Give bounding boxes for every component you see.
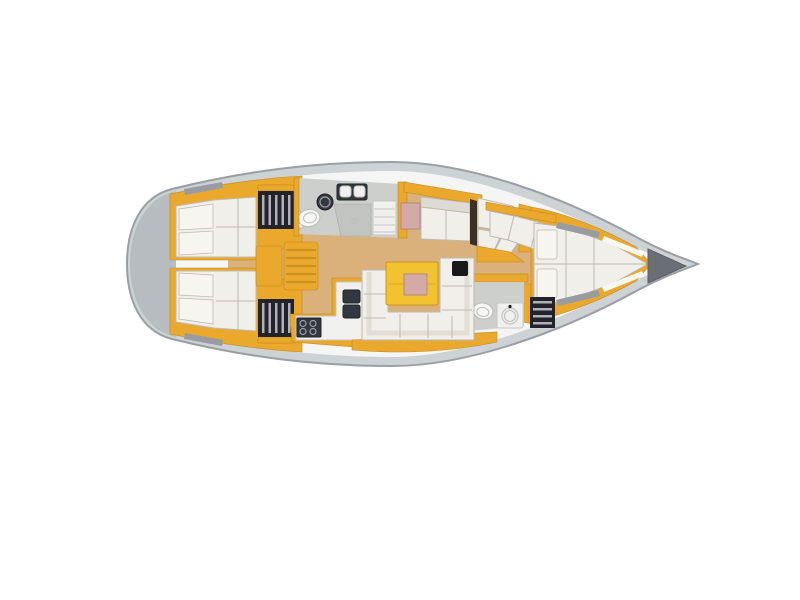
chart-table-side-panel xyxy=(470,199,477,246)
locker-stripe xyxy=(269,303,272,333)
locker-stripe xyxy=(262,303,265,333)
table-inset xyxy=(404,274,427,295)
locker-slat xyxy=(533,301,552,304)
locker-stripe xyxy=(288,195,291,225)
locker-slat xyxy=(533,308,552,311)
locker-stripe xyxy=(262,195,265,225)
locker-stripe xyxy=(282,195,285,225)
aft-cabin-starboard-pillow xyxy=(179,298,213,324)
instrument-panel xyxy=(452,261,468,276)
locker-shelf-trim xyxy=(258,337,294,343)
aft-cabin-starboard-pillow xyxy=(179,273,213,297)
vanity-bowl xyxy=(340,186,351,197)
galley-sink xyxy=(343,305,360,318)
v-berth-pillow xyxy=(537,230,557,259)
floor-plan-svg xyxy=(0,0,800,600)
locker-stripe xyxy=(282,303,285,333)
v-berth-pillow xyxy=(537,269,557,298)
aft-cabin-port-pillow xyxy=(179,231,213,255)
locker-slat xyxy=(533,315,552,318)
vanity-bowl xyxy=(354,186,365,197)
aft-cabin-port-pillow xyxy=(179,204,213,230)
head-wall xyxy=(294,178,299,236)
locker-stripe xyxy=(275,303,278,333)
locker-stripe xyxy=(275,195,278,225)
round-washbasin xyxy=(317,194,333,210)
galley-sink xyxy=(343,290,360,303)
faucet xyxy=(508,305,511,308)
companionway-landing xyxy=(256,246,282,286)
companionway-steps xyxy=(256,242,318,290)
aft-head xyxy=(294,178,407,238)
locker-slat xyxy=(533,322,552,325)
locker-stripe xyxy=(269,195,272,225)
locker-shelf-trim xyxy=(258,185,294,191)
boat-floor-plan xyxy=(0,0,800,600)
pink-cushion xyxy=(401,203,420,229)
stern-swim-platform xyxy=(130,191,176,337)
head-shelf-unit xyxy=(373,201,396,235)
